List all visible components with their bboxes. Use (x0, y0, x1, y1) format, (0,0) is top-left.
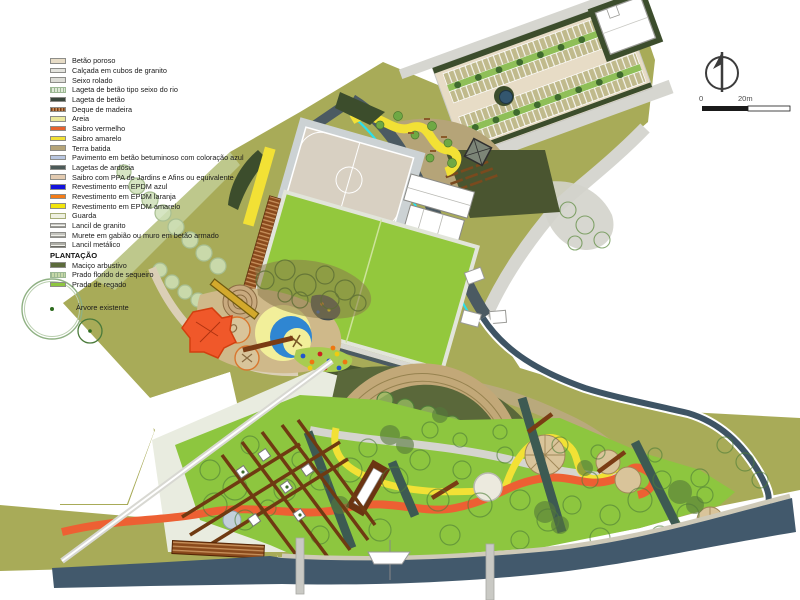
legend-item: Betão poroso (50, 56, 244, 66)
legend-item-label: Seixo rolado (72, 76, 113, 85)
legend-item-label: Murete em gabião ou muro em betão armado (72, 231, 219, 240)
legend-item-label: Prado florido de sequeiro (72, 270, 154, 279)
legend-swatch-hatchv (50, 87, 66, 93)
legend-swatch-solid (50, 194, 66, 200)
legend-swatch-solid (50, 282, 66, 288)
legend-item-label: Revestimento em EPDM azul (72, 182, 167, 191)
legend-item-label: Lancil de granito (72, 221, 126, 230)
legend-item: Maciço arbustivo (50, 260, 244, 270)
legend-item: Lagetas de ardósia (50, 163, 244, 173)
legend-item: Areia (50, 114, 244, 124)
legend-swatch-linesh (50, 232, 66, 238)
existing-tree-label: Árvore existente (76, 303, 129, 312)
scale-max-label: 20m (738, 94, 753, 103)
legend-item: Guarda (50, 211, 244, 221)
legend-swatch-solid (50, 136, 66, 142)
legend-item: Revestimento em EPDM amarelo (50, 201, 244, 211)
legend-swatch-solid (50, 58, 66, 64)
legend-item: Revestimento em EPDM azul (50, 182, 244, 192)
legend-item: Lageta de betão (50, 95, 244, 105)
legend-swatch-guard (50, 213, 66, 219)
site-plan-page: Betão porosoCalçada em cubos de granitoS… (0, 0, 800, 600)
legend-swatch-solid (50, 126, 66, 132)
legend-item: Saibro vermelho (50, 124, 244, 134)
legend-item: Calçada em cubos de granito (50, 66, 244, 76)
north-arrow-icon (706, 52, 738, 92)
legend-item-label: Saibro vermelho (72, 124, 125, 133)
legend-item-label: Lancil metálico (72, 240, 120, 249)
legend: Betão porosoCalçada em cubos de granitoS… (50, 56, 244, 289)
legend-item-label: Terra batida (72, 144, 111, 153)
legend-item: Pavimento em betão betuminoso com colora… (50, 153, 244, 163)
legend-item: Lancil de granito (50, 221, 244, 231)
legend-item-label: Betão poroso (72, 56, 115, 65)
legend-item: Lancil metálico (50, 240, 244, 250)
scale-zero-label: 0 (699, 94, 703, 103)
legend-item: Revestimento em EPDM laranja (50, 192, 244, 202)
legend-item-label: Pavimento em betão betuminoso com colora… (72, 153, 244, 162)
legend-item-label: Revestimento em EPDM amarelo (72, 202, 180, 211)
legend-item-label: Prado de regado (72, 280, 126, 289)
legend-item: Saibro com PPA de Jardins e Afins ou equ… (50, 172, 244, 182)
legend-swatch-solid (50, 155, 66, 161)
legend-item-label: Lageta de betão (72, 95, 125, 104)
legend-swatch-wood (50, 107, 66, 113)
legend-swatch-solid (50, 145, 66, 151)
legend-swatch-solid (50, 116, 66, 122)
legend-item: Seixo rolado (50, 75, 244, 85)
legend-item-label: Areia (72, 114, 89, 123)
legend-swatch-solid (50, 68, 66, 74)
legend-item: Prado florido de sequeiro (50, 270, 244, 280)
legend-item-label: Calçada em cubos de granito (72, 66, 167, 75)
legend-swatch-solid (50, 203, 66, 209)
legend-item-label: Deque de madeira (72, 105, 132, 114)
legend-swatch-solid (50, 165, 66, 171)
legend-swatch-solid (50, 184, 66, 190)
legend-item: Deque de madeira (50, 104, 244, 114)
legend-item: Saibro amarelo (50, 134, 244, 144)
pier-1 (296, 538, 304, 594)
legend-swatch-solid (50, 77, 66, 83)
legend-swatch-hatchv (50, 272, 66, 278)
legend-item-label: Lagetas de ardósia (72, 163, 134, 172)
legend-item: Prado de regado (50, 280, 244, 290)
legend-item-label: Saibro amarelo (72, 134, 121, 143)
legend-swatch-darklines (50, 242, 66, 248)
legend-item: Terra batida (50, 143, 244, 153)
parking-pond (494, 86, 514, 106)
legend-item: Lageta de betão tipo seixo do rio (50, 85, 244, 95)
legend-swatch-solid (50, 262, 66, 268)
legend-item-label: Guarda (72, 211, 96, 220)
legend-swatch-solid (50, 174, 66, 180)
pier-2 (486, 544, 494, 600)
legend-item-label: Lageta de betão tipo seixo do rio (72, 85, 178, 94)
legend-swatch-solid (50, 97, 66, 103)
legend-plantacao-header: PLANTAÇÃO (50, 250, 244, 261)
scale-bar (702, 106, 790, 111)
legend-item-label: Saibro com PPA de Jardins e Afins ou equ… (72, 173, 234, 182)
legend-item-label: Maciço arbustivo (72, 261, 127, 270)
legend-item-label: Revestimento em EPDM laranja (72, 192, 176, 201)
legend-item: Murete em gabião ou muro em betão armado (50, 230, 244, 240)
legend-swatch-linesh (50, 223, 66, 229)
